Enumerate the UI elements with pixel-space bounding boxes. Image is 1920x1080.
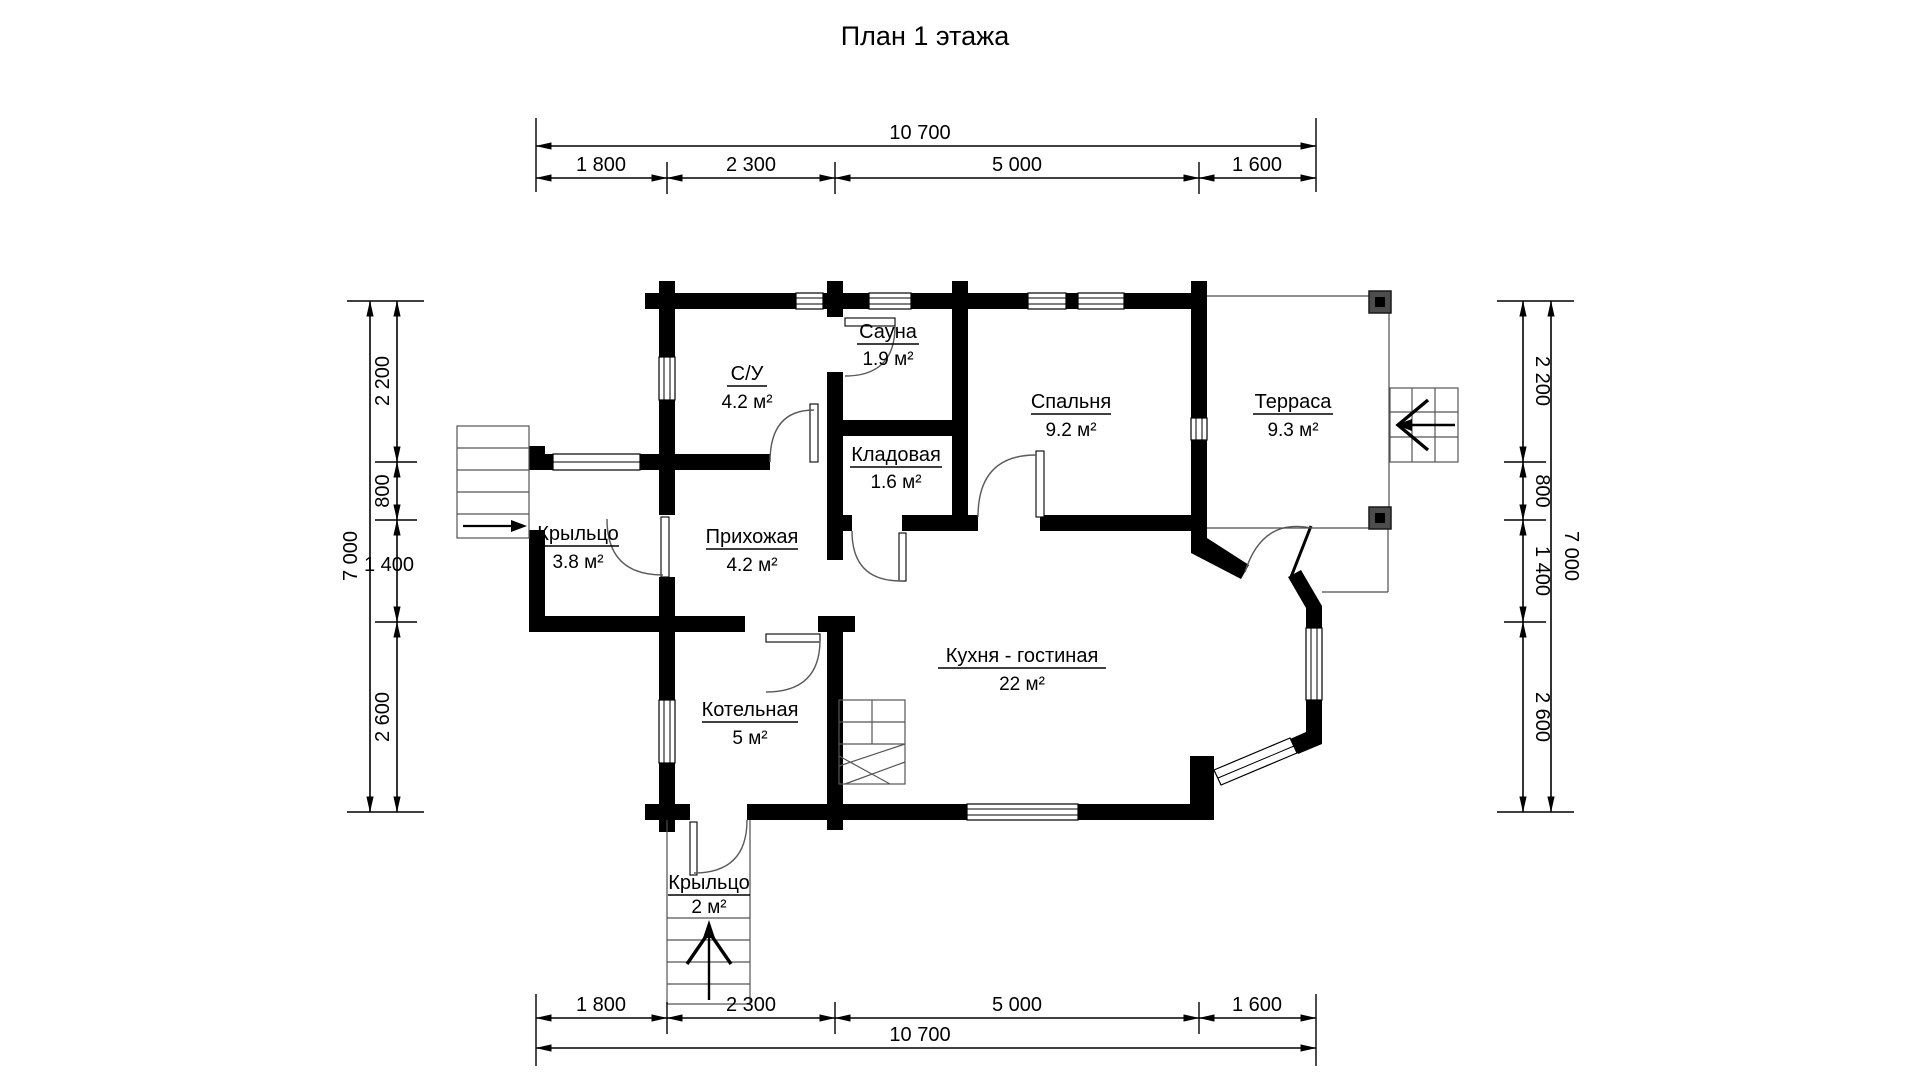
dim-label-total: 7 000 — [1560, 531, 1582, 581]
terrace-group — [1207, 291, 1391, 592]
door-terrace — [1245, 526, 1311, 577]
dim-label-total: 7 000 — [340, 531, 362, 581]
room-name: Крыльцо — [537, 523, 619, 545]
room-area: 1.6 м² — [870, 472, 921, 493]
room-area: 2 м² — [691, 897, 726, 918]
dim-label-total: 10 700 — [889, 122, 950, 144]
window-bay-angled — [1214, 738, 1297, 785]
dimension-top: 10 700 1 800 2 300 5 000 1 600 — [536, 118, 1316, 194]
dim-label: 2 600 — [1531, 692, 1553, 742]
door-storage — [852, 531, 906, 581]
right-arrow-icon — [463, 520, 527, 532]
room-label-porch-left: Крыльцо 3.8 м² — [537, 523, 619, 573]
window — [967, 804, 1078, 820]
stairs-boiler-winder — [839, 700, 905, 784]
room-area: 5 м² — [732, 728, 767, 749]
room-area: 4.2 м² — [726, 555, 777, 576]
dim-label: 2 200 — [1531, 356, 1553, 406]
dim-label: 1 400 — [364, 554, 414, 576]
dim-label: 1 400 — [1531, 546, 1553, 596]
room-label-kitchen-living: Кухня - гостиная 22 м² — [938, 645, 1106, 695]
room-area: 22 м² — [999, 674, 1045, 695]
dimension-right: 2 200 800 1 400 2 600 7 000 — [1497, 301, 1582, 812]
dim-label: 800 — [1531, 474, 1553, 507]
room-area: 9.2 м² — [1045, 420, 1096, 441]
room-name: Кладовая — [851, 444, 941, 466]
dim-label: 1 800 — [576, 154, 626, 176]
floor-plan-canvas: План 1 этажа — [0, 0, 1920, 1080]
walls-group — [529, 281, 1322, 832]
window — [659, 357, 675, 400]
room-area: 4.2 м² — [721, 392, 772, 413]
plan-title: План 1 этажа — [841, 21, 1010, 51]
dim-label: 5 000 — [992, 154, 1042, 176]
dim-label: 800 — [372, 474, 394, 507]
room-name: Терраса — [1255, 391, 1333, 413]
up-arrow-icon — [687, 920, 731, 1000]
window — [869, 293, 911, 309]
room-name: С/У — [731, 363, 764, 385]
room-name: Сауна — [859, 321, 918, 343]
room-label-hallway: Прихожая 4.2 м² — [706, 526, 799, 576]
dim-label: 5 000 — [992, 994, 1042, 1016]
room-label-terrace: Терраса 9.3 м² — [1253, 391, 1333, 441]
window — [1028, 293, 1066, 309]
room-name: Кухня - гостиная — [946, 645, 1099, 667]
dim-label: 2 300 — [726, 994, 776, 1016]
room-area: 1.9 м² — [862, 349, 913, 370]
dim-label-total: 10 700 — [889, 1024, 950, 1046]
room-name: Крыльцо — [668, 872, 750, 894]
floor-plan-page: План 1 этажа — [0, 0, 1920, 1080]
room-label-storage: Кладовая 1.6 м² — [850, 444, 942, 493]
stairs-left-porch — [457, 426, 529, 538]
window — [659, 700, 675, 763]
room-area: 3.8 м² — [552, 552, 603, 573]
door-porch-bottom — [690, 820, 747, 875]
room-name: Котельная — [702, 699, 799, 721]
window — [553, 454, 640, 470]
door-wc — [770, 404, 818, 462]
dim-label: 1 600 — [1232, 154, 1282, 176]
stairs-terrace — [1390, 388, 1458, 462]
door-bedroom — [978, 451, 1044, 517]
room-label-bedroom: Спальня 9.2 м² — [1031, 391, 1111, 441]
room-name: Прихожая — [706, 526, 799, 548]
window — [1306, 628, 1322, 700]
dimension-bottom: 1 800 2 300 5 000 1 600 10 700 — [536, 994, 1316, 1066]
left-arrow-icon — [1396, 400, 1455, 450]
terrace-post — [1369, 291, 1391, 313]
dim-label: 2 200 — [372, 356, 394, 406]
room-label-sauna: Сауна 1.9 м² — [857, 321, 919, 370]
window — [1191, 418, 1207, 440]
room-label-boiler: Котельная 5 м² — [702, 699, 799, 749]
dim-label: 1 800 — [576, 994, 626, 1016]
window — [796, 293, 823, 309]
room-name: Спальня — [1031, 391, 1111, 413]
dim-label: 2 300 — [726, 154, 776, 176]
room-label-wc: С/У 4.2 м² — [721, 363, 772, 413]
dimension-left: 7 000 2 200 800 1 400 2 600 — [340, 301, 424, 812]
room-area: 9.3 м² — [1267, 420, 1318, 441]
dim-label: 2 600 — [372, 692, 394, 742]
terrace-post — [1369, 507, 1391, 529]
window — [1078, 293, 1124, 309]
room-label-porch-bottom: Крыльцо 2 м² — [668, 872, 750, 918]
door-boiler — [766, 634, 820, 692]
dim-label: 1 600 — [1232, 994, 1282, 1016]
